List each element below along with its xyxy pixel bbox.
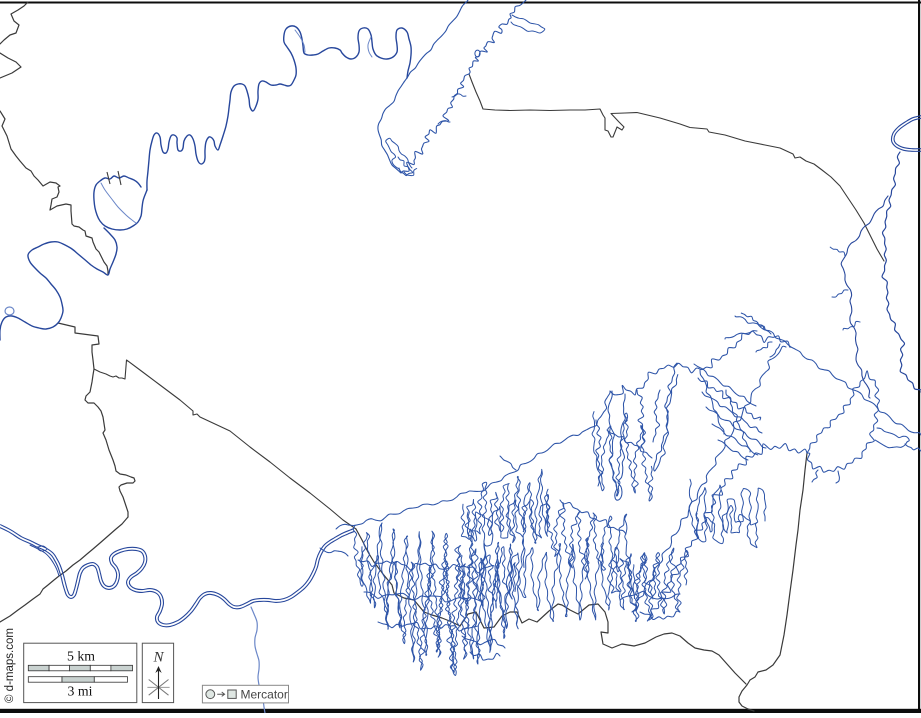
svg-text:© d-maps.com: © d-maps.com [4,628,16,703]
svg-text:N: N [152,650,164,666]
svg-text:5 km: 5 km [67,649,95,664]
svg-text:3 mi: 3 mi [68,684,93,699]
svg-text:Mercator: Mercator [241,688,288,702]
